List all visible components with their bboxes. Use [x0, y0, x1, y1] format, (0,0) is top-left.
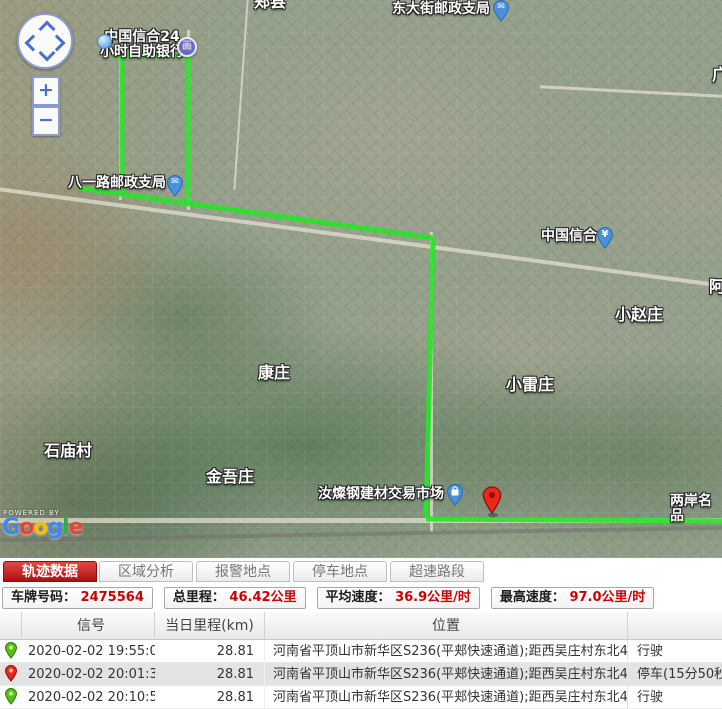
row-status: 行驶	[628, 640, 722, 662]
map-label-kangzhuang: 康庄	[258, 364, 290, 382]
stat-label: 总里程：	[173, 590, 225, 605]
stat-max-speed: 最高速度： 97.0公里/时	[491, 587, 654, 609]
header-mileage: 当日里程(km)	[155, 612, 265, 639]
stop-pin-marker[interactable]	[482, 486, 502, 518]
tab-track-data[interactable]: 轨迹数据	[3, 561, 97, 582]
gps-route	[0, 0, 722, 558]
map-label-jinwuzhuang: 金吾庄	[206, 468, 254, 486]
map-label-zhongguoxinhe: 中国信合	[541, 229, 597, 244]
row-status: 停车(15分50秒)	[628, 663, 722, 685]
stat-value: 46.42公里	[229, 590, 296, 605]
tab-alarm-locations[interactable]: 报警地点	[196, 561, 290, 582]
green-pin-icon	[5, 688, 17, 705]
row-location: 河南省平顶山市新华区S236(平郏快速通道);距西吴庄村东北46	[265, 663, 628, 685]
map-label-shimiaocun: 石庙村	[44, 442, 92, 460]
row-status: 行驶	[628, 686, 722, 708]
stat-total-mileage: 总里程： 46.42公里	[164, 587, 306, 609]
zoom-in-button[interactable]: +	[32, 76, 60, 106]
atm-icon[interactable]: 画	[177, 37, 197, 57]
bottom-panel-tabs: 轨迹数据 区域分析 报警地点 停车地点 超速路段	[0, 558, 722, 585]
map-label-liangan-partial: 两岸名品	[670, 494, 722, 525]
map-pan-control[interactable]	[17, 13, 73, 69]
poi-ball-marker[interactable]	[97, 34, 112, 49]
stat-label: 平均速度：	[326, 590, 391, 605]
envelope-icon: ✉	[167, 176, 183, 189]
market-marker[interactable]	[447, 484, 463, 506]
header-signal: 信号	[22, 612, 155, 639]
zoom-out-button[interactable]: −	[32, 106, 60, 136]
map-label-a-partial: 阿	[709, 278, 722, 296]
tab-area-analysis[interactable]: 区域分析	[99, 561, 193, 582]
header-location: 位置	[265, 612, 628, 639]
stat-label: 最高速度：	[500, 590, 565, 605]
table-row[interactable]: 2020-02-02 20:10:55 28.81 河南省平顶山市新华区S236…	[0, 686, 722, 709]
header-pin-column	[0, 612, 22, 639]
table-header-row: 信号 当日里程(km) 位置	[0, 612, 722, 640]
google-logo: Google	[2, 515, 83, 540]
stat-value: 2475564	[81, 590, 144, 605]
row-mileage: 28.81	[155, 686, 265, 708]
stat-value: 36.9公里/时	[395, 590, 471, 605]
header-status-column	[628, 612, 722, 639]
stat-value: 97.0公里/时	[569, 590, 645, 605]
tab-parking-locations[interactable]: 停车地点	[293, 561, 387, 582]
post-office-marker[interactable]: ✉	[493, 0, 509, 22]
map-label-xiaoleizhuang: 小雷庄	[506, 376, 554, 394]
row-time: 2020-02-02 20:01:33	[22, 663, 155, 685]
table-row[interactable]: 2020-02-02 20:01:33 28.81 河南省平顶山市新华区S236…	[0, 663, 722, 686]
row-mileage: 28.81	[155, 663, 265, 685]
row-pin-cell	[0, 686, 22, 708]
row-pin-cell	[0, 663, 22, 685]
route-polyline	[78, 188, 433, 238]
map-label-bayilu-post: 八一路邮政支局	[68, 176, 166, 191]
track-data-table: 信号 当日里程(km) 位置 2020-02-02 19:55:06 28.81…	[0, 612, 722, 709]
map-label-jiaxian: 郏县	[254, 0, 286, 11]
map-label-guang-partial: 广	[712, 66, 722, 84]
summary-stats-bar: 车牌号码： 2475564 总里程： 46.42公里 平均速度： 36.9公里/…	[0, 584, 722, 612]
table-row[interactable]: 2020-02-02 19:55:06 28.81 河南省平顶山市新华区S236…	[0, 640, 722, 663]
map-label-dongdajie-post: 东大街邮政支局	[392, 2, 490, 17]
pan-up-icon[interactable]	[39, 21, 56, 38]
satellite-map[interactable]: + − 郏县 东大街邮政支局 广 中国信合24 小时自助银行 八一路邮政支局 中…	[0, 0, 722, 558]
row-pin-cell	[0, 640, 22, 662]
yen-icon: ¥	[597, 228, 613, 241]
stat-average-speed: 平均速度： 36.9公里/时	[317, 587, 480, 609]
row-location: 河南省平顶山市新华区S236(平郏快速通道);距西吴庄村东北46	[265, 640, 628, 662]
post-office-marker[interactable]: ✉	[167, 175, 183, 197]
bank-marker[interactable]: ¥	[597, 227, 613, 249]
stat-plate-number: 车牌号码： 2475564	[2, 587, 153, 609]
map-label-steel-market: 汝燦钢建材交易市场	[318, 487, 444, 502]
tab-speeding-sections[interactable]: 超速路段	[390, 561, 484, 582]
row-time: 2020-02-02 20:10:55	[22, 686, 155, 708]
row-location: 河南省平顶山市新华区S236(平郏快速通道);距西吴庄村东北46	[265, 686, 628, 708]
envelope-icon: ✉	[493, 1, 509, 14]
row-mileage: 28.81	[155, 640, 265, 662]
pan-left-icon[interactable]	[25, 35, 42, 52]
red-pin-icon	[5, 665, 17, 682]
green-pin-icon	[5, 642, 17, 659]
map-label-xiaozhaozhuang: 小赵庄	[615, 306, 663, 324]
route-polyline	[426, 238, 433, 517]
row-time: 2020-02-02 19:55:06	[22, 640, 155, 662]
stat-label: 车牌号码：	[11, 590, 76, 605]
